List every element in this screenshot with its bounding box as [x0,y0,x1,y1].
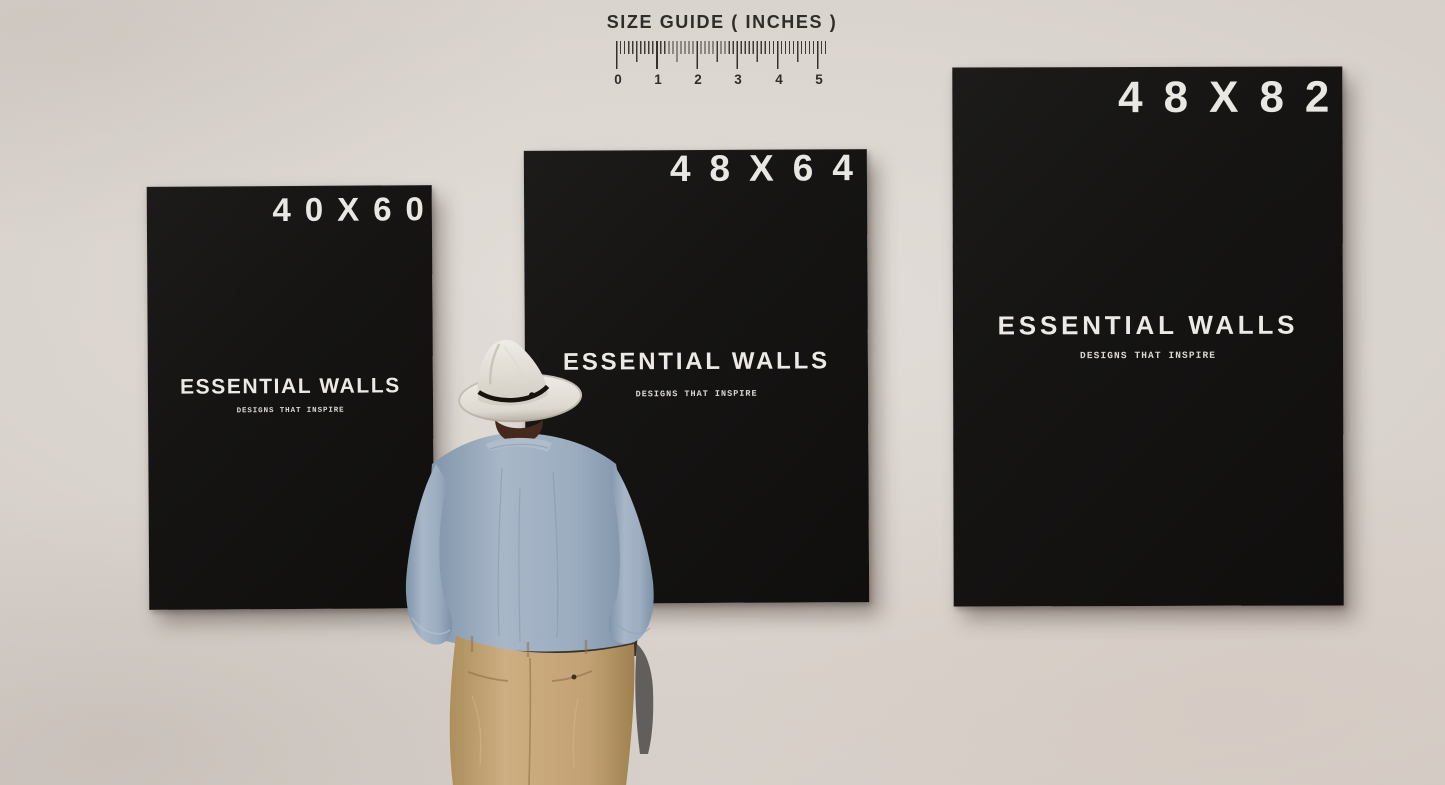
poster-tagline: DESIGNS THAT INSPIRE [953,350,1343,361]
ruler-tick-label: 3 [734,72,742,87]
ruler-tick-label: 4 [775,72,783,87]
poster-brand-title: ESSENTIAL WALLS [148,375,433,398]
poster-brand-title: ESSENTIAL WALLS [953,311,1343,338]
ruler-tick-label: 0 [614,72,622,87]
trousers [450,636,635,785]
poster-size-label: 48X64 [670,149,872,187]
arm-shadow [635,644,653,754]
ruler-tick-label: 1 [654,72,662,87]
poster-canvas: 40X60 ESSENTIAL WALLS DESIGNS THAT INSPI… [147,185,435,610]
ruler-inch-ticks [616,41,821,69]
ruler-tick-labels: 012345 [616,72,828,88]
ruler-tick-label: 2 [694,72,702,87]
size-guide: SIZE GUIDE ( INCHES ) 012345 [592,12,852,88]
ruler-tick-label: 5 [815,72,823,87]
poster-size-label: 48X82 [1118,75,1350,120]
poster-size-label: 40X60 [272,192,438,226]
ruler-icon [616,41,828,69]
scene-wall: SIZE GUIDE ( INCHES ) 012345 40X60 ESSEN… [0,0,1445,785]
fedora-hat [455,336,583,425]
poster-tagline: DESIGNS THAT INSPIRE [148,407,433,416]
person-figure [402,336,662,785]
size-guide-title: SIZE GUIDE ( INCHES ) [592,12,852,34]
shirt [406,433,654,651]
poster-canvas: 48X82 ESSENTIAL WALLS DESIGNS THAT INSPI… [952,66,1343,606]
